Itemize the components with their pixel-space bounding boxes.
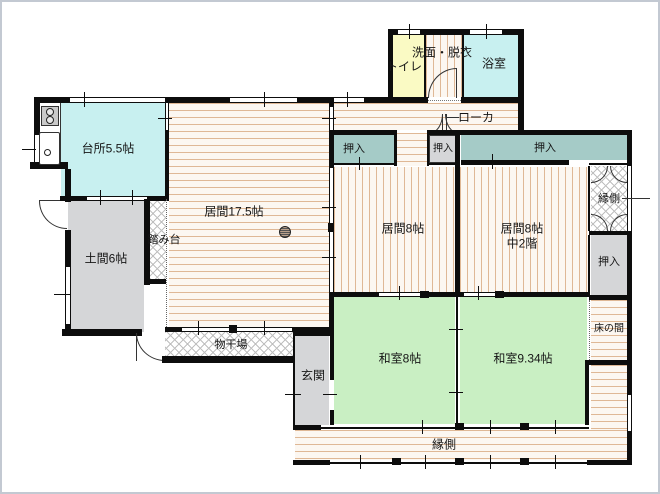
tick-mark	[322, 207, 336, 208]
post	[520, 458, 529, 465]
door-arc	[136, 333, 165, 361]
wall	[429, 163, 457, 165]
wall	[424, 35, 426, 97]
wall	[457, 130, 632, 135]
wall	[462, 35, 464, 97]
tick-mark	[264, 321, 265, 335]
wall	[587, 460, 632, 465]
tick-mark	[490, 455, 491, 469]
tick-mark	[409, 24, 410, 39]
wall	[330, 410, 334, 425]
wall	[456, 296, 458, 424]
room-label-closet-c: 押入	[534, 142, 556, 154]
tick-mark	[54, 294, 70, 295]
wall	[518, 97, 524, 130]
wall	[589, 163, 629, 165]
tick-mark	[347, 92, 348, 107]
window	[65, 267, 71, 324]
wall	[427, 133, 429, 166]
room-label-genkan: 玄関	[301, 369, 325, 382]
wall	[65, 230, 71, 267]
room-label-corridor: ローカ	[458, 111, 494, 124]
wall	[329, 130, 397, 135]
faucet-icon	[44, 149, 51, 156]
door-leaf	[456, 68, 457, 98]
floor-plan: 台所5.5帖 居間17.5帖 ローカ トイレ 洗面・脱衣 浴室 押入 押入 押入…	[0, 0, 660, 494]
room-corridor-stub	[397, 133, 427, 166]
tick-mark	[555, 455, 556, 469]
post	[455, 423, 464, 430]
wall	[585, 360, 629, 365]
room-label-tokonoma: 床の間	[594, 324, 624, 335]
post	[420, 291, 429, 298]
partition-dotted	[166, 199, 167, 327]
partition-dotted	[589, 300, 590, 360]
room-label-closet-b: 押入	[433, 144, 453, 155]
tick-mark	[322, 118, 336, 119]
wall	[588, 235, 590, 295]
wall	[589, 231, 629, 235]
wall	[293, 336, 295, 425]
room-label-living8-west: 居間8帖	[382, 222, 425, 235]
window	[627, 395, 632, 431]
room-engawa-arm	[591, 365, 627, 430]
wall	[329, 292, 334, 336]
stove-icon	[41, 106, 59, 126]
post	[229, 325, 237, 333]
room-label-drying-area: 物干場	[215, 339, 248, 351]
door-arc	[39, 201, 67, 229]
tick-mark	[399, 286, 400, 300]
tick-mark	[22, 149, 36, 150]
wall	[394, 130, 397, 166]
tick-mark	[360, 455, 361, 469]
post	[520, 423, 529, 430]
door-leaf	[136, 333, 137, 361]
room-label-living8-east-sub: 中2階	[507, 237, 538, 250]
wall	[330, 336, 334, 380]
burner-icon	[46, 116, 54, 124]
room-label-toilet: トイレ	[386, 60, 422, 73]
wall	[165, 130, 169, 196]
post	[328, 223, 334, 232]
wall	[293, 460, 330, 465]
room-label-kitchen: 台所5.5帖	[82, 142, 135, 155]
wall	[518, 29, 524, 97]
tick-mark	[555, 420, 556, 434]
door-threshold	[428, 100, 461, 101]
tick-mark	[84, 92, 85, 107]
room-label-engawa-south: 縁側	[432, 438, 456, 451]
room-label-doma: 土間6帖	[85, 252, 128, 265]
sliding-door-opening	[182, 327, 229, 332]
room-label-engawa-east: 縁側	[598, 193, 620, 205]
sliding-door-opening	[464, 292, 495, 297]
wall	[162, 356, 295, 363]
tick-mark	[198, 321, 199, 335]
wall	[627, 130, 632, 166]
wall	[585, 365, 589, 425]
sink-icon	[39, 132, 60, 165]
heater-symbol	[279, 226, 291, 238]
tick-mark	[449, 392, 463, 393]
post	[455, 458, 464, 465]
room-label-closet-east: 押入	[598, 256, 620, 268]
wall	[589, 295, 629, 300]
burner-icon	[46, 108, 54, 116]
sliding-door-opening	[165, 103, 169, 130]
wall	[332, 292, 589, 297]
room-label-living8-east: 居間8帖	[501, 222, 544, 235]
wall	[333, 163, 394, 165]
tick-mark	[285, 394, 301, 395]
tick-mark	[322, 257, 336, 258]
wall	[62, 329, 142, 336]
post	[392, 458, 401, 465]
sliding-door-opening	[87, 196, 147, 201]
room-label-washroom: 洗面・脱衣	[412, 46, 472, 59]
tick-mark	[425, 455, 426, 469]
tick-mark	[492, 154, 493, 169]
room-label-washitsu-934: 和室9.34帖	[493, 352, 552, 365]
tick-mark	[490, 420, 491, 434]
tick-mark	[422, 420, 423, 434]
wall	[588, 166, 590, 231]
wall	[461, 160, 569, 165]
room-label-step: 踏み台	[148, 234, 181, 246]
wall	[293, 425, 321, 430]
tick-mark	[264, 92, 265, 107]
wall	[293, 330, 333, 336]
window	[329, 107, 334, 131]
tick-mark	[132, 190, 133, 205]
tick-mark	[359, 157, 360, 170]
tick-mark	[478, 286, 479, 300]
window	[334, 97, 364, 103]
label-leader-line	[622, 198, 650, 199]
wall	[455, 133, 460, 296]
tick-mark	[158, 118, 172, 119]
tick-mark	[449, 329, 463, 330]
room-label-closet-a: 押入	[343, 143, 365, 155]
wall	[627, 231, 632, 395]
room-label-washitsu-8: 和室8帖	[379, 352, 422, 365]
tick-mark	[323, 394, 337, 395]
room-engawa-south	[295, 430, 629, 460]
room-label-bathroom: 浴室	[482, 57, 506, 70]
wall	[150, 279, 166, 284]
tick-mark	[100, 190, 101, 205]
room-label-living-main: 居間17.5帖	[204, 205, 263, 218]
tick-mark	[486, 24, 487, 39]
post	[495, 291, 504, 298]
